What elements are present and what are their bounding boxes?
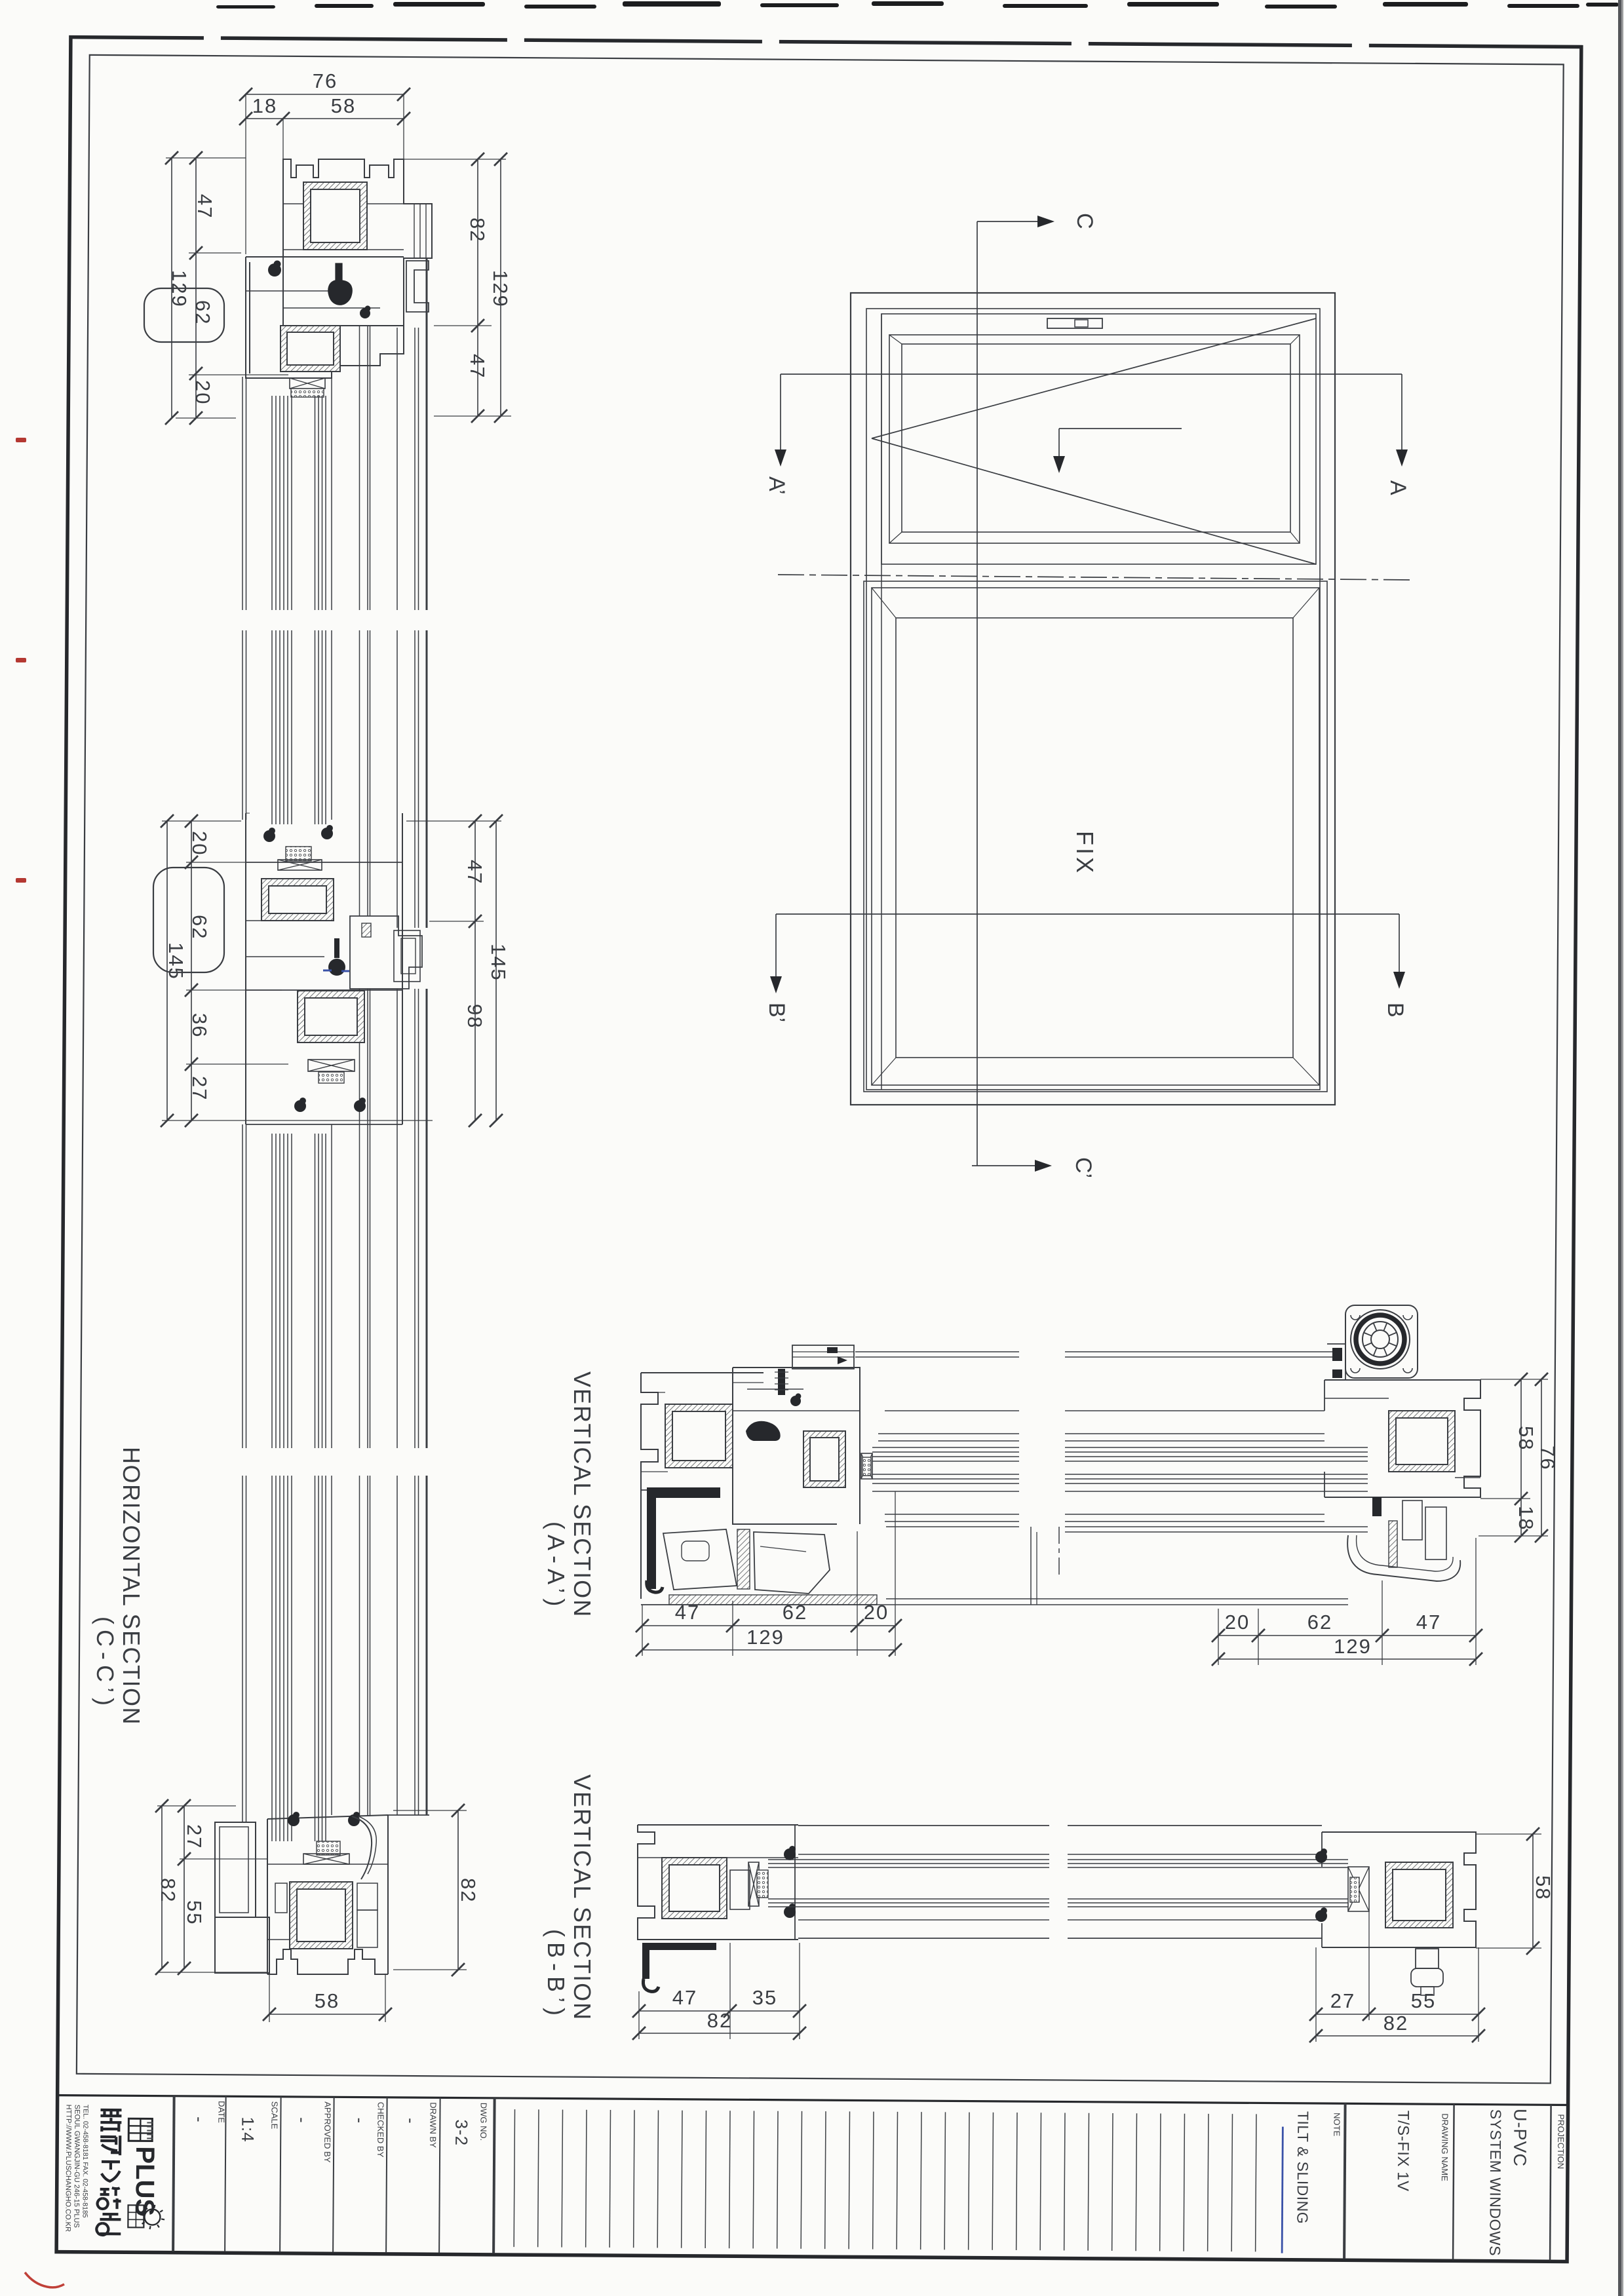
- svg-text:DRAWN BY: DRAWN BY: [428, 2102, 438, 2148]
- svg-text:98: 98: [463, 1004, 486, 1029]
- svg-text:NOTE: NOTE: [1332, 2113, 1342, 2137]
- svg-text:58: 58: [1532, 1875, 1555, 1900]
- svg-text:55: 55: [1411, 1989, 1436, 2012]
- svg-text:82: 82: [707, 2009, 732, 2032]
- svg-text:76: 76: [313, 69, 338, 92]
- svg-text:(C-C’): (C-C’): [92, 1617, 119, 1711]
- svg-text:47: 47: [672, 1986, 697, 2009]
- svg-text:-: -: [401, 2118, 421, 2124]
- svg-text:27: 27: [1330, 1989, 1355, 2012]
- svg-text:20: 20: [864, 1601, 889, 1624]
- svg-text:47: 47: [1416, 1611, 1441, 1634]
- svg-text:APPROVED BY: APPROVED BY: [322, 2101, 333, 2163]
- svg-text:58: 58: [1515, 1426, 1537, 1451]
- svg-text:-: -: [350, 2117, 370, 2123]
- svg-text:VERTICAL SECTION: VERTICAL SECTION: [569, 1774, 596, 2021]
- svg-text:DRAWING NAME: DRAWING NAME: [1440, 2113, 1450, 2181]
- svg-text:TEL. 02-458-8181 FAX. 02-458-8: TEL. 02-458-8181 FAX. 02-458-8185: [81, 2105, 89, 2218]
- svg-text:82: 82: [1383, 2012, 1408, 2035]
- svg-text:A’: A’: [764, 476, 789, 495]
- svg-text:82: 82: [157, 1878, 180, 1903]
- svg-text:62: 62: [191, 300, 214, 325]
- svg-text:20: 20: [191, 380, 214, 405]
- svg-text:U-PVC: U-PVC: [1510, 2109, 1530, 2167]
- svg-text:129: 129: [489, 270, 512, 308]
- svg-text:55: 55: [183, 1900, 206, 1925]
- svg-text:SEOUL GWANGJIN-GU 246-15 PLUS: SEOUL GWANGJIN-GU 246-15 PLUS: [72, 2105, 81, 2228]
- svg-text:82: 82: [457, 1878, 480, 1903]
- svg-text:A: A: [1385, 480, 1410, 495]
- svg-text:SCALE: SCALE: [269, 2101, 279, 2130]
- svg-text:FIX: FIX: [1072, 831, 1098, 875]
- svg-text:47: 47: [466, 354, 489, 379]
- svg-text:-: -: [189, 2116, 209, 2122]
- svg-text:129: 129: [746, 1626, 784, 1649]
- svg-text:35: 35: [752, 1986, 777, 2009]
- svg-text:1:4: 1:4: [238, 2116, 258, 2142]
- svg-text:-: -: [292, 2117, 312, 2123]
- svg-text:36: 36: [188, 1013, 211, 1038]
- svg-text:47: 47: [675, 1601, 700, 1624]
- svg-text:62: 62: [188, 915, 211, 940]
- svg-text:SYSTEM WINDOWS: SYSTEM WINDOWS: [1486, 2109, 1504, 2256]
- svg-text:C: C: [1072, 213, 1097, 229]
- svg-text:B’: B’: [764, 1003, 789, 1022]
- svg-text:20: 20: [1225, 1611, 1250, 1634]
- svg-text:145: 145: [487, 944, 510, 982]
- svg-text:TILT & SLIDING: TILT & SLIDING: [1294, 2111, 1311, 2224]
- svg-text:HTTP://WWW.PLUSCHANGHO.CO.KR: HTTP://WWW.PLUSCHANGHO.CO.KR: [64, 2105, 72, 2232]
- svg-text:20: 20: [188, 831, 211, 856]
- svg-text:HORIZONTAL SECTION: HORIZONTAL SECTION: [118, 1447, 145, 1725]
- svg-text:47: 47: [193, 194, 216, 219]
- svg-text:82: 82: [466, 218, 489, 242]
- svg-text:47: 47: [463, 860, 486, 885]
- svg-text:T/S-FIX 1V: T/S-FIX 1V: [1394, 2111, 1412, 2192]
- svg-text:58: 58: [315, 1989, 339, 2012]
- svg-text:B: B: [1383, 1003, 1408, 1018]
- svg-text:(A-A’): (A-A’): [543, 1521, 570, 1611]
- svg-text:VERTICAL SECTION: VERTICAL SECTION: [569, 1371, 596, 1618]
- svg-text:129: 129: [1334, 1635, 1372, 1658]
- svg-text:C’: C’: [1071, 1157, 1096, 1178]
- svg-text:18: 18: [1515, 1506, 1537, 1531]
- svg-text:18: 18: [252, 94, 277, 117]
- svg-text:27: 27: [183, 1824, 206, 1849]
- svg-text:(B-B’): (B-B’): [543, 1929, 570, 2021]
- svg-text:76: 76: [1536, 1445, 1559, 1470]
- svg-text:PROJECTION: PROJECTION: [1556, 2114, 1566, 2169]
- svg-text:3-2: 3-2: [452, 2119, 471, 2146]
- svg-text:CHECKED BY: CHECKED BY: [376, 2102, 386, 2158]
- svg-text:145: 145: [164, 942, 187, 980]
- svg-text:62: 62: [1307, 1611, 1332, 1634]
- svg-text:58: 58: [331, 94, 356, 117]
- svg-text:62: 62: [783, 1601, 807, 1624]
- svg-text:DWG NO.: DWG NO.: [478, 2103, 488, 2141]
- svg-text:DATE: DATE: [216, 2101, 226, 2123]
- svg-text:27: 27: [188, 1076, 211, 1101]
